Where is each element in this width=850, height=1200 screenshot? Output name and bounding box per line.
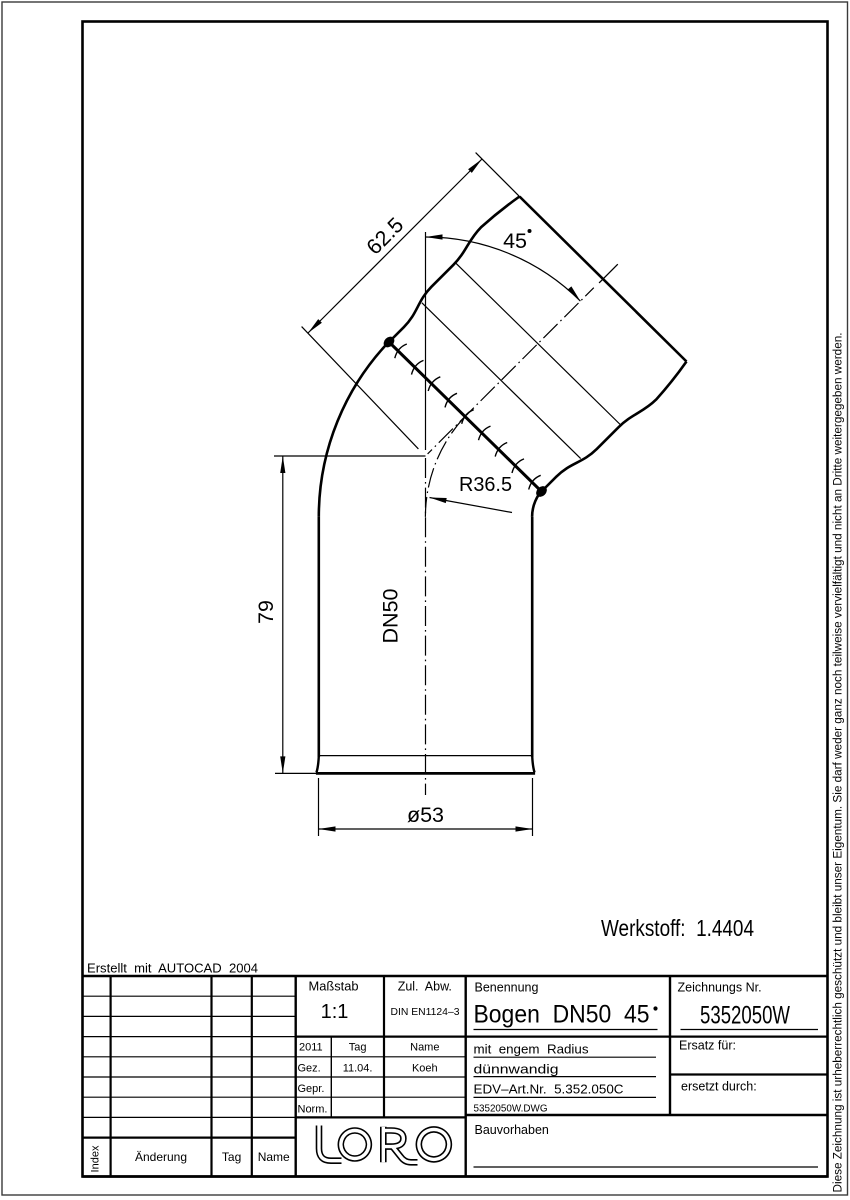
svg-text:DIN EN1124–3: DIN EN1124–3 xyxy=(391,1006,460,1018)
svg-text:R36.5: R36.5 xyxy=(459,473,512,496)
svg-text:mit engem Radius: mit engem Radius xyxy=(474,1042,589,1056)
svg-text:62.5: 62.5 xyxy=(362,213,409,260)
svg-text:2011: 2011 xyxy=(299,1042,323,1054)
svg-text:5352050W.DWG: 5352050W.DWG xyxy=(474,1102,548,1114)
svg-text:dünnwandig: dünnwandig xyxy=(474,1062,559,1076)
svg-text:Name: Name xyxy=(258,1150,290,1164)
svg-text:EDV–Art.Nr. 5.352.050C: EDV–Art.Nr. 5.352.050C xyxy=(474,1082,624,1096)
svg-text:Zeichnungs Nr.: Zeichnungs Nr. xyxy=(678,981,762,995)
svg-text:5352050W: 5352050W xyxy=(700,1002,790,1030)
svg-text:Gez.: Gez. xyxy=(298,1063,321,1075)
svg-text:Index: Index xyxy=(90,1145,102,1172)
svg-text:DN50: DN50 xyxy=(379,588,403,643)
svg-text:11.04.: 11.04. xyxy=(343,1063,373,1075)
svg-text:Norm.: Norm. xyxy=(298,1104,328,1116)
svg-text:Bauvorhaben: Bauvorhaben xyxy=(475,1123,549,1137)
svg-text:Gepr.: Gepr. xyxy=(298,1083,325,1095)
svg-text:Ersatz für:: Ersatz für: xyxy=(679,1039,736,1053)
svg-text:ersetzt durch:: ersetzt durch: xyxy=(681,1080,757,1094)
svg-text:ø53: ø53 xyxy=(407,803,444,827)
svg-text:45: 45 xyxy=(503,229,527,253)
svg-text:Erstellt mit AUTOCAD 2004: Erstellt mit AUTOCAD 2004 xyxy=(87,961,258,976)
svg-text:Name: Name xyxy=(410,1042,439,1054)
svg-text:Tag: Tag xyxy=(222,1150,241,1164)
svg-text:Tag: Tag xyxy=(349,1042,367,1054)
svg-text:Änderung: Änderung xyxy=(135,1150,187,1164)
svg-text:Zul. Abw.: Zul. Abw. xyxy=(398,980,452,994)
svg-text:Benennung: Benennung xyxy=(475,981,539,995)
svg-text:1:1: 1:1 xyxy=(321,1001,349,1023)
svg-text:79: 79 xyxy=(254,600,278,624)
svg-text:Koeh: Koeh xyxy=(412,1063,438,1075)
svg-text:Diese Zeichnung ist urheberrec: Diese Zeichnung ist urheberrechtlich ges… xyxy=(833,333,845,1193)
svg-text:Bogen DN50 45: Bogen DN50 45 xyxy=(474,1001,650,1029)
svg-text:Maßstab: Maßstab xyxy=(309,980,359,994)
svg-text:Werkstoff: 1.4404: Werkstoff: 1.4404 xyxy=(601,915,754,941)
